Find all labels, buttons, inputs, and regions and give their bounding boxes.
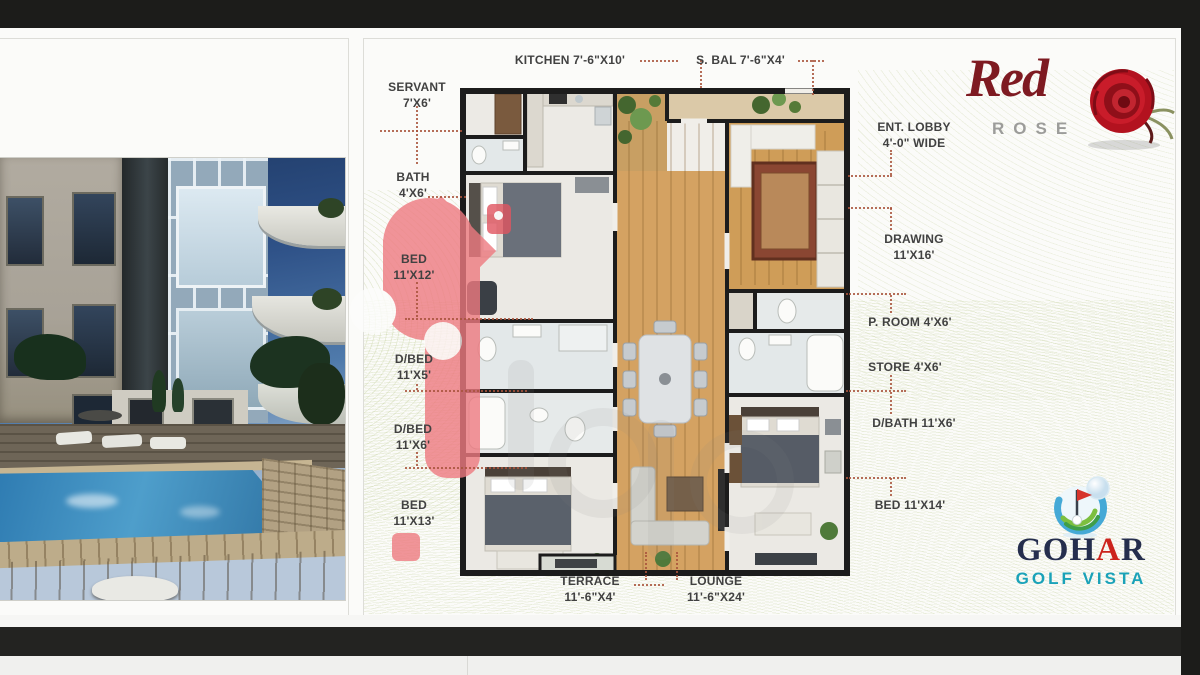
label-p-room: P. ROOM 4'X6' <box>860 315 960 331</box>
label-dbed2: D/BED11'X6' <box>378 422 448 453</box>
floor-plan <box>455 85 855 580</box>
top-frame-bar <box>0 0 1200 28</box>
red-rose-logo: Red ROSE <box>960 55 1175 163</box>
lounge-chair <box>56 431 93 445</box>
gohar-tagline-text: GOLF VISTA <box>1000 570 1162 587</box>
leader-dbed2 <box>405 467 527 469</box>
leader-lobby-v <box>890 150 892 175</box>
label-lounge: LOUNGE11'-6"X24' <box>670 574 762 605</box>
label-dbed1: D/BED11'X5' <box>378 352 450 383</box>
below-bar-strip <box>0 656 1181 675</box>
leader-drawing <box>848 207 892 209</box>
leader-bed3-v <box>890 478 892 496</box>
label-store: STORE 4'X6' <box>860 360 950 376</box>
leader-servant-v <box>416 106 418 164</box>
leader-proom <box>846 293 906 295</box>
palm-tree <box>14 334 86 380</box>
leader-bed1-v <box>416 282 418 317</box>
label-bed2: BED11'X13' <box>378 498 450 529</box>
leader-store <box>846 390 906 392</box>
building-photo <box>0 158 345 600</box>
leader-dbed1 <box>405 390 527 392</box>
below-strip-divider <box>467 656 468 675</box>
leader-drawing-v <box>890 208 892 230</box>
balcony-plant <box>318 198 344 218</box>
label-bed1: BED11'X12' <box>378 252 450 283</box>
gohar-name-text: GOHAR <box>1000 534 1162 567</box>
umbrella <box>78 410 122 421</box>
leader-dbed2-v <box>416 452 418 466</box>
leader-terrace <box>634 584 664 586</box>
red-rose-script-text: Red <box>966 51 1047 105</box>
cypress <box>152 370 166 412</box>
label-kitchen: KITCHEN 7'-6"X10' <box>495 53 645 69</box>
lounge-chair <box>102 434 143 448</box>
label-terrace: TERRACE11'-6"X4' <box>548 574 632 605</box>
pool-light <box>180 506 220 518</box>
red-rose-caps-text: ROSE <box>992 119 1076 139</box>
bottom-frame-bar <box>0 627 1181 656</box>
balcony-plant <box>312 288 342 310</box>
label-s-bal: S. BAL 7'-6"X4' <box>678 53 803 69</box>
leader-sbal-v <box>812 60 814 95</box>
shrub <box>298 363 345 425</box>
property-listing-image: KITCHEN 7'-6"X10' S. BAL 7'-6"X4' SERVAN… <box>0 0 1200 675</box>
facade-window <box>72 192 116 266</box>
label-bath: BATH4'X6' <box>378 170 448 201</box>
right-frame-bar <box>1181 0 1200 675</box>
leader-store-v <box>890 375 892 389</box>
leader-servant <box>380 130 462 132</box>
terrace-bench <box>555 559 597 568</box>
leader-dbath-v <box>890 392 892 414</box>
label-ent-lobby: ENT. LOBBY4'-0" WIDE <box>866 120 962 151</box>
under-panel-strip <box>0 615 1181 627</box>
label-servant: SERVANT7'X6' <box>376 80 458 111</box>
facade-window <box>6 196 44 266</box>
leader-kitchen <box>640 60 678 62</box>
lounge-chair <box>150 437 186 449</box>
label-drawing: DRAWING11'X16' <box>870 232 958 263</box>
leader-lobby <box>848 175 892 177</box>
lit-window <box>176 186 266 288</box>
leader-bed3 <box>846 477 906 479</box>
leader-proom-v <box>890 295 892 313</box>
gohar-golf-icon <box>1046 476 1116 540</box>
leader-bed1 <box>405 318 533 320</box>
white-sculpture <box>92 576 178 600</box>
gohar-logo: GOHAR GOLF VISTA <box>1000 476 1162 608</box>
pool-light <box>66 494 118 508</box>
leader-terrace-v <box>645 552 647 580</box>
rose-flower-icon <box>1076 55 1176 155</box>
cypress <box>172 378 184 412</box>
label-dbath: D/BATH 11'X6' <box>862 416 966 432</box>
label-bed3: BED 11'X14' <box>864 498 956 514</box>
